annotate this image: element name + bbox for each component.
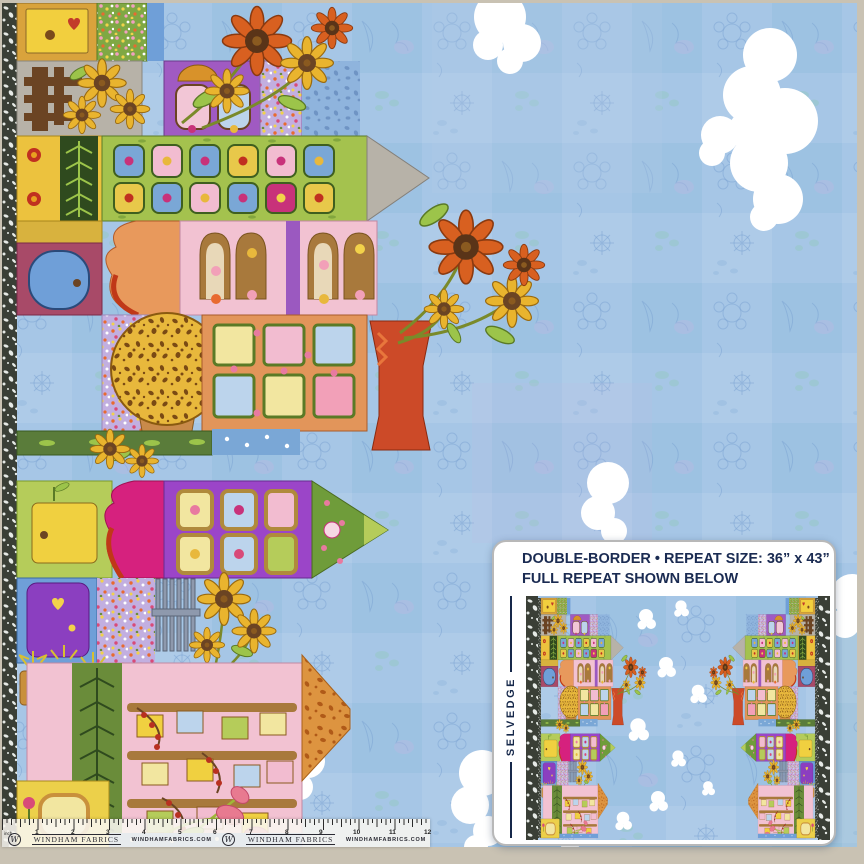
brand-name: WINDHAM FABRICS (246, 834, 336, 845)
ruler-branding: W WINDHAM FABRICS WINDHAMFABRICS.COM W W… (8, 833, 426, 846)
full-repeat-note: FULL REPEAT SHOWN BELOW (522, 571, 828, 587)
full-repeat-thumbnail (526, 596, 830, 840)
website-url: WINDHAMFABRICS.COM (346, 837, 426, 843)
selvedge-line (510, 596, 512, 672)
selvedge-label: SELVEDGE (505, 677, 517, 756)
repeat-size-text: DOUBLE-BORDER • REPEAT SIZE: 36” x 43” (522, 551, 828, 567)
inch-ruler: inch 1 2 3 4 5 6 7 8 9 10 11 12 W WINDHA… (2, 819, 430, 847)
brand-name: WINDHAM FABRICS (32, 834, 122, 845)
website-url: WINDHAMFABRICS.COM (132, 837, 212, 843)
selvedge-line (510, 762, 512, 838)
windham-monogram-icon: W (222, 833, 235, 846)
windham-monogram-icon: W (8, 833, 21, 846)
repeat-info-panel: DOUBLE-BORDER • REPEAT SIZE: 36” x 43” F… (492, 540, 836, 846)
selvedge-annotation: SELVEDGE (500, 596, 522, 838)
